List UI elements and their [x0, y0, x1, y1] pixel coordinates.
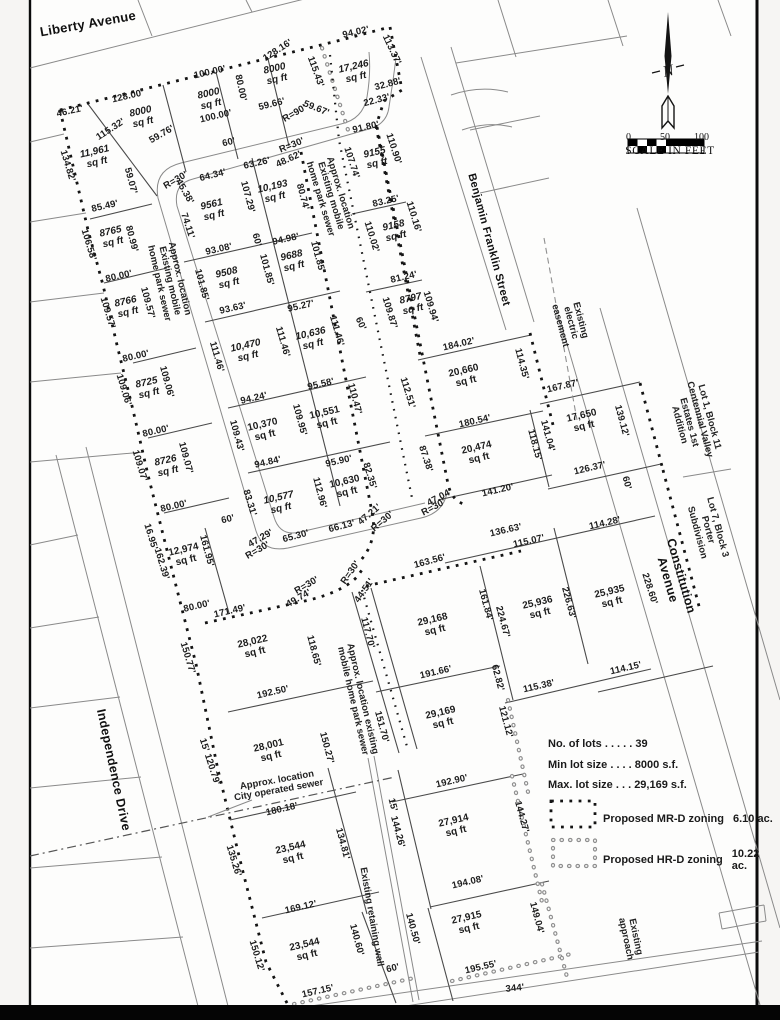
legend-stat-min-lot: Min lot size . . . . 8000 s.f. [548, 759, 773, 771]
scale-tick-50: 50 [660, 132, 670, 143]
north-letter: N [660, 62, 677, 82]
scale-tick-0: 0 [626, 132, 631, 143]
hrd-swatch-spacer [548, 846, 594, 874]
legend: No. of lots . . . . . 39 Min lot size . … [548, 738, 773, 874]
dimension-label: 344' [505, 983, 525, 995]
legend-zone-hrd: Proposed HR-D zoning 10.22 ac. [548, 846, 773, 874]
plat-map-photo: N 46.21'128.00'115.32'134.82'100.00'80.0… [0, 0, 780, 1020]
legend-stat-lot-count: No. of lots . . . . . 39 [548, 738, 773, 750]
mrd-zone-label: Proposed MR-D zoning [603, 813, 724, 825]
scale-bar-text: 0 50 100 SCALE IN FEET [620, 132, 720, 157]
photo-letterbox [0, 1005, 780, 1020]
hrd-zone-value: 10.22 ac. [732, 848, 773, 872]
dimension-label: 60' [619, 475, 632, 490]
dimension-label: 60' [249, 232, 262, 247]
hrd-zone-label: Proposed HR-D zoning [603, 854, 723, 866]
scale-caption: SCALE IN FEET [620, 145, 720, 157]
mrd-swatch-spacer [548, 805, 594, 833]
north-arrow: N [652, 12, 684, 128]
legend-stat-max-lot: Max. lot size . . . 29,169 s.f. [548, 779, 773, 791]
mrd-zone-value: 6.10 ac. [733, 813, 773, 825]
legend-zone-mrd: Proposed MR-D zoning 6.10 ac. [548, 805, 773, 833]
dimension-label: 15' [385, 797, 398, 812]
scale-tick-100: 100 [694, 132, 709, 143]
